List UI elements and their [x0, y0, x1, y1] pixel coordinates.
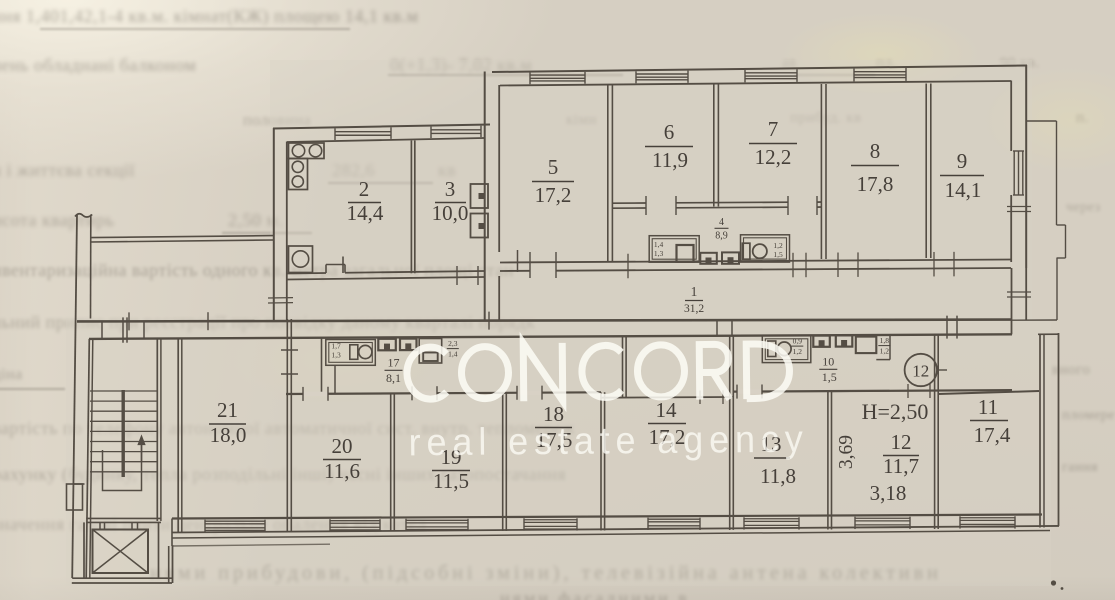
- svg-text:H=2,50: H=2,50: [862, 399, 929, 424]
- svg-text:17,8: 17,8: [857, 172, 894, 196]
- svg-text:21: 21: [217, 398, 238, 422]
- svg-text:17,2: 17,2: [535, 183, 572, 207]
- svg-text:3,69: 3,69: [836, 435, 857, 469]
- svg-text:20: 20: [332, 434, 353, 458]
- svg-text:8: 8: [870, 139, 881, 163]
- svg-text:11,6: 11,6: [324, 459, 360, 483]
- svg-text:14,4: 14,4: [347, 201, 384, 225]
- svg-text:2,3: 2,3: [448, 339, 458, 348]
- svg-text:1: 1: [691, 284, 698, 299]
- svg-text:1,8: 1,8: [880, 336, 890, 345]
- svg-text:11,5: 11,5: [433, 469, 469, 493]
- svg-text:18,0: 18,0: [210, 423, 247, 447]
- svg-text:1,2: 1,2: [880, 347, 890, 356]
- svg-text:real estate agency: real estate agency: [408, 418, 808, 464]
- svg-text:1,5: 1,5: [822, 370, 837, 384]
- svg-text:9: 9: [957, 149, 968, 173]
- svg-text:5: 5: [548, 155, 559, 179]
- svg-text:12,2: 12,2: [755, 145, 792, 169]
- svg-text:11: 11: [978, 395, 998, 419]
- svg-text:1,3: 1,3: [331, 351, 341, 360]
- svg-text:1,4: 1,4: [448, 350, 458, 359]
- svg-text:2: 2: [359, 177, 370, 201]
- svg-text:1,4: 1,4: [654, 240, 664, 249]
- svg-text:11,9: 11,9: [652, 148, 688, 172]
- svg-text:1,2: 1,2: [773, 241, 783, 250]
- svg-text:11,7: 11,7: [883, 454, 919, 478]
- svg-text:31,2: 31,2: [684, 303, 704, 315]
- svg-text:0,9: 0,9: [793, 337, 803, 346]
- svg-text:17: 17: [388, 356, 400, 370]
- svg-text:10: 10: [822, 355, 834, 369]
- svg-text:14: 14: [656, 398, 678, 422]
- svg-text:8,1: 8,1: [386, 371, 401, 385]
- svg-text:7: 7: [768, 117, 779, 141]
- svg-text:12: 12: [891, 430, 912, 454]
- svg-text:1,7: 1,7: [331, 342, 341, 351]
- svg-text:17,4: 17,4: [974, 423, 1011, 447]
- svg-text:3: 3: [445, 177, 456, 201]
- svg-text:14,1: 14,1: [945, 178, 982, 202]
- svg-text:8,9: 8,9: [715, 231, 728, 242]
- svg-text:12: 12: [912, 362, 929, 381]
- svg-text:1,3: 1,3: [654, 249, 664, 258]
- svg-text:1,5: 1,5: [773, 250, 783, 259]
- svg-text:4: 4: [719, 217, 724, 228]
- svg-text:1,2: 1,2: [793, 347, 803, 356]
- svg-text:10,0: 10,0: [432, 201, 469, 225]
- svg-text:3,18: 3,18: [870, 481, 907, 505]
- svg-text:6: 6: [664, 120, 675, 144]
- svg-text:11,8: 11,8: [760, 464, 796, 488]
